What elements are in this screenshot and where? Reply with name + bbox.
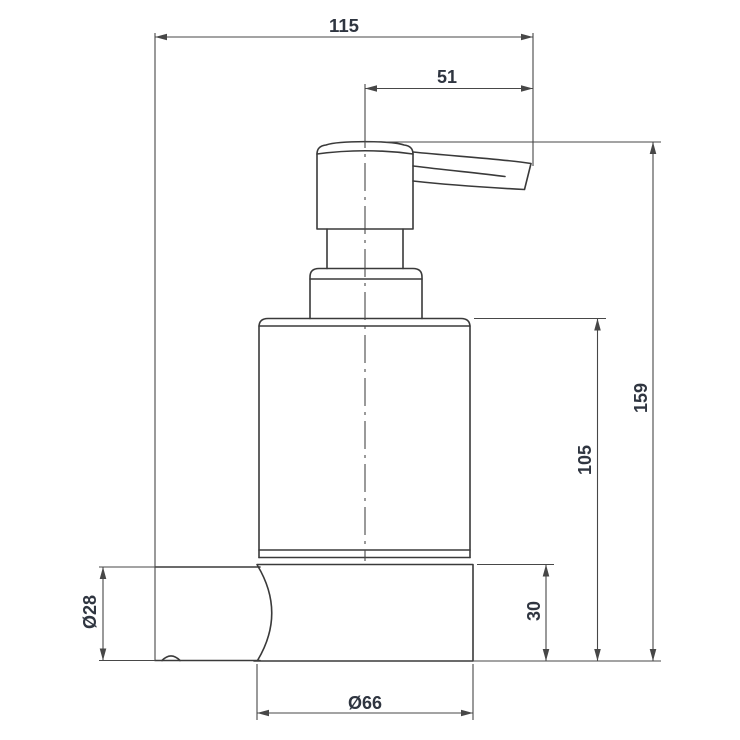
dim-label-bottle-height: 105 xyxy=(575,445,595,475)
technical-drawing-canvas: 115 51 159 105 30 Ø28 Ø66 xyxy=(0,0,740,740)
dim-label-holder-diameter: Ø66 xyxy=(348,693,382,713)
product-outline xyxy=(155,142,531,661)
pump-spout-inner-line xyxy=(413,166,505,177)
dim-label-total-width: 115 xyxy=(329,16,359,36)
arm-diameter-extensions xyxy=(99,567,155,661)
dim-label-spout-reach: 51 xyxy=(437,67,457,87)
dimension-lines xyxy=(103,37,653,713)
dim-label-arm-diameter: Ø28 xyxy=(80,595,100,629)
pump-head-dome-line xyxy=(317,151,413,154)
wall-arm xyxy=(155,567,260,661)
pump-collar xyxy=(310,269,422,319)
bottle-holder-left-arc xyxy=(258,566,272,661)
extension-lines xyxy=(99,33,661,720)
soap-dispenser-dimension-drawing: 115 51 159 105 30 Ø28 Ø66 xyxy=(0,0,740,740)
dim-label-total-height: 159 xyxy=(631,383,651,413)
pump-spout xyxy=(413,152,531,190)
bottle-holder xyxy=(254,565,473,662)
dim-label-holder-height: 30 xyxy=(524,601,544,621)
